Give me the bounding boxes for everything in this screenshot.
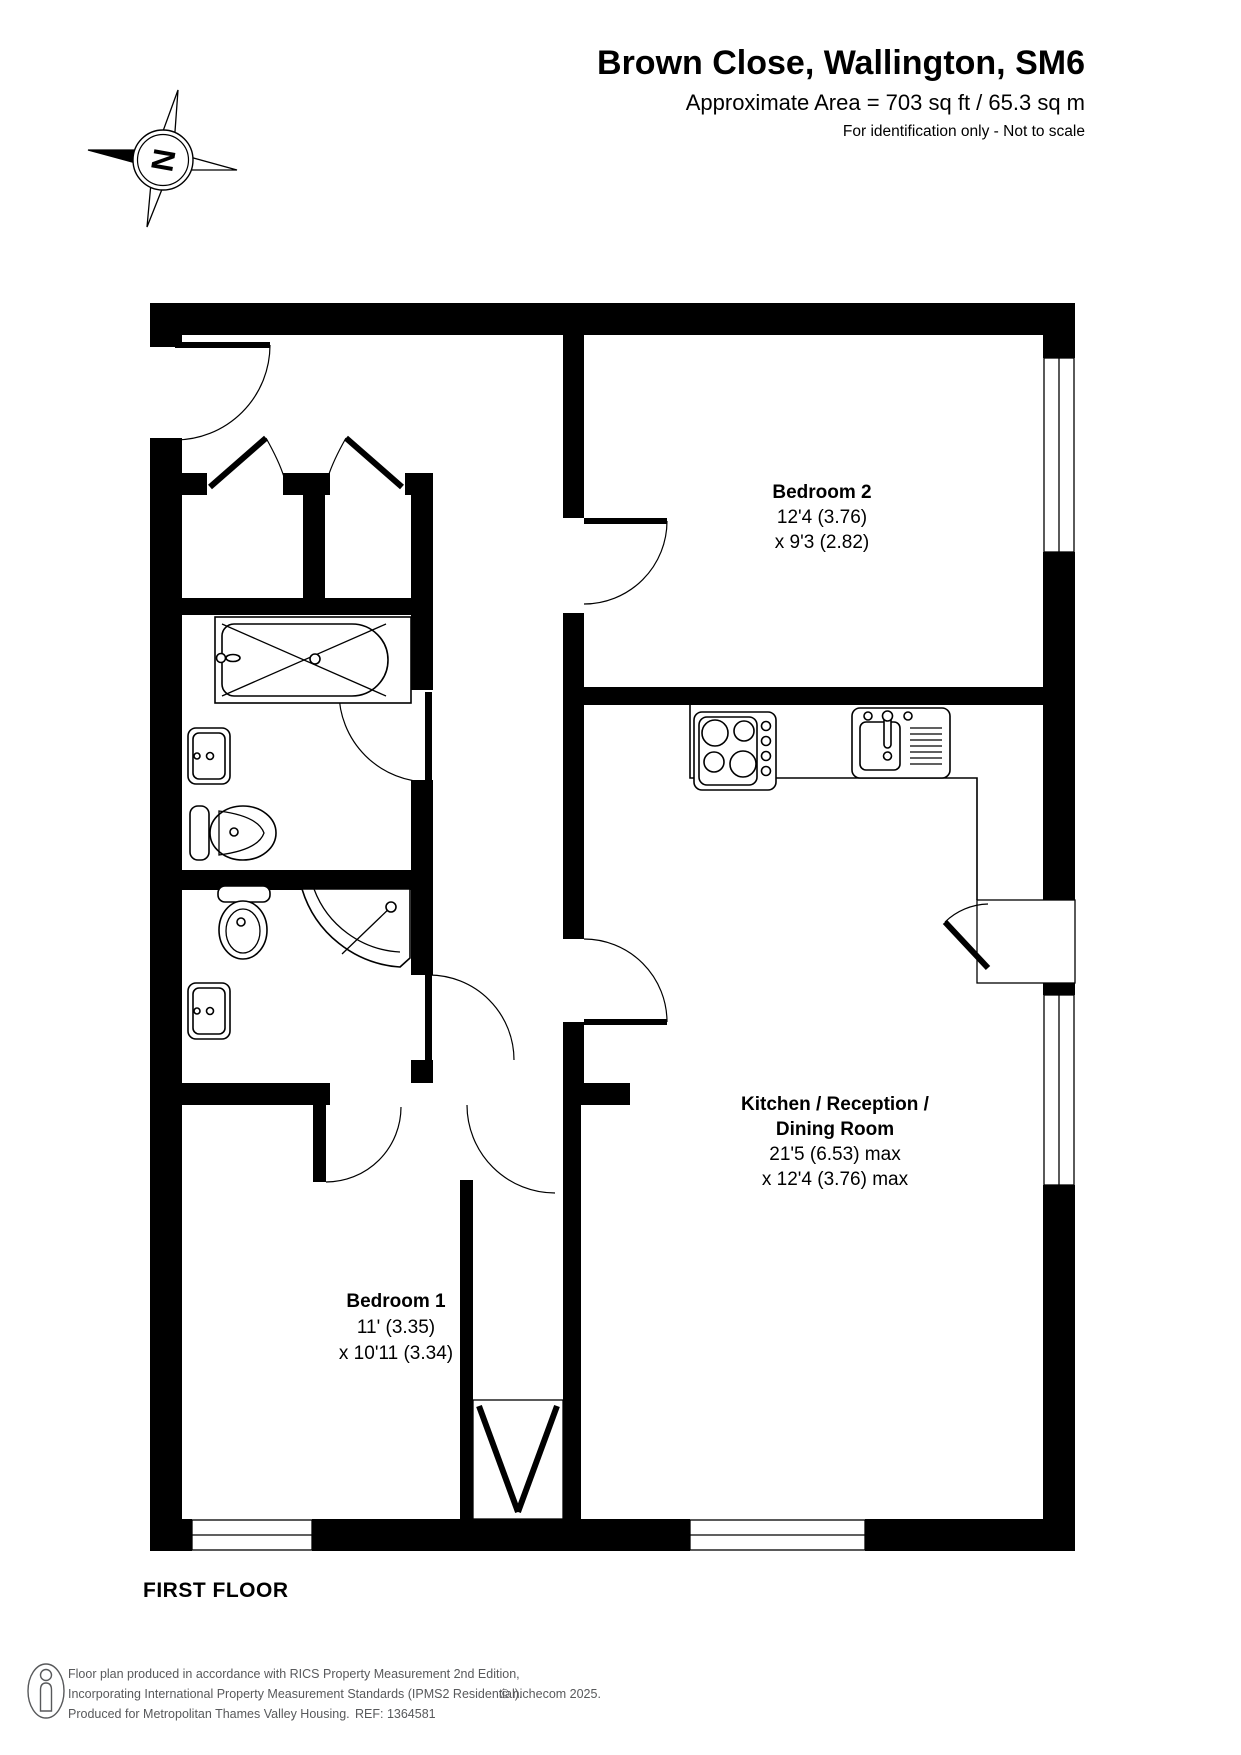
wall-closet-right [411,495,433,615]
wall-bathroom-bottom [150,870,433,890]
wall-bathroom-right-upper [411,613,433,690]
hallway-door [467,1105,555,1193]
svg-text:Bedroom 2: Bedroom 2 [772,482,871,503]
page-title: Brown Close, Wallington, SM6 [597,44,1085,82]
kitchen-door [584,939,667,1025]
footer: Floor plan produced in accordance with R… [28,1664,601,1721]
scale-disclaimer: For identification only - Not to scale [843,123,1085,140]
bath-drain-icon [310,654,320,664]
closet-door-left [210,438,284,487]
wall-bathroom-top [182,598,433,615]
footer-ref: REF: 1364581 [355,1707,436,1721]
corner-shower [302,889,410,967]
svg-text:x 12'4 (3.76) max: x 12'4 (3.76) max [762,1169,909,1190]
footer-line2: Incorporating International Property Mea… [68,1687,522,1701]
wall-bedroom2-kitchen [563,687,1043,705]
bathroom-basin [188,728,230,784]
header: Brown Close, Wallington, SM6 Approximate… [597,44,1085,140]
wall-shower-bottom [150,1083,330,1105]
svg-text:11' (3.35): 11' (3.35) [357,1317,435,1338]
wall-kitchen-stub [563,1083,630,1105]
bedroom2-door [584,518,667,604]
basin-tap-icon [194,753,200,759]
window-bedroom1-bottom [192,1519,312,1551]
footer-copyright: © nichecom 2025. [500,1687,601,1701]
shower-toilet [218,886,270,959]
vestibule-entry [473,1400,563,1519]
svg-text:x 9'3 (2.82): x 9'3 (2.82) [775,532,869,553]
walls [150,303,1075,1551]
wall-shower-right-upper [411,890,433,975]
bath-tap-icon [217,654,226,663]
footer-line1: Floor plan produced in accordance with R… [68,1667,520,1681]
hob-icon [694,712,776,790]
kitchen-recess [977,900,1075,983]
wall-bedroom1-right [460,1180,473,1519]
bathroom-toilet [190,806,276,860]
compass-icon: N [88,90,237,227]
sink-icon [852,708,950,778]
person-icon [28,1664,64,1718]
wall-left-upper [150,303,182,347]
svg-text:Bedroom 1: Bedroom 1 [346,1291,446,1312]
footer-line3: Produced for Metropolitan Thames Valley … [68,1707,350,1721]
approximate-area: Approximate Area = 703 sq ft / 65.3 sq m [686,90,1085,115]
wall-central-mid [563,613,584,939]
shower-room-basin [188,983,230,1039]
svg-text:x 10'11 (3.34): x 10'11 (3.34) [339,1343,453,1364]
wall-closet-row-mid [283,473,330,495]
wall-bedroom1-door-stub [313,1105,326,1182]
floor-caption: FIRST FLOOR [143,1579,289,1602]
wall-shower-right-lower [411,1060,433,1083]
bathroom-door [339,692,432,782]
wall-closet-row-left [150,473,207,495]
wall-closet-row-right [405,473,433,495]
wall-vestibule-right [563,1105,581,1519]
wall-left [150,438,182,1551]
window-kitchen-bottom [690,1519,865,1551]
wall-top [150,303,1075,335]
svg-text:12'4 (3.76): 12'4 (3.76) [777,507,867,528]
svg-text:Dining Room: Dining Room [776,1119,894,1140]
kitchen-label: Kitchen / Reception / Dining Room 21'5 (… [741,1094,930,1190]
bedroom2-label: Bedroom 2 12'4 (3.76) x 9'3 (2.82) [772,482,871,553]
bathroom-fixtures [188,617,411,860]
wall-bathroom-right-lower [411,780,433,870]
bedroom1-door [326,1107,401,1182]
shower-room-fixtures [188,886,410,1039]
svg-text:21'5 (6.53) max: 21'5 (6.53) max [769,1144,901,1165]
wall-closet-divider [303,495,325,615]
floorplan-canvas: Brown Close, Wallington, SM6 Approximate… [0,0,1241,1755]
entry-door [175,342,270,440]
wall-central-upper [563,335,584,518]
bedroom1-label: Bedroom 1 11' (3.35) x 10'11 (3.34) [339,1291,453,1364]
bathtub [215,617,411,703]
floorplan-page: Brown Close, Wallington, SM6 Approximate… [0,0,1241,1755]
window-bedroom2 [1043,358,1075,552]
window-kitchen-right [1043,995,1075,1185]
svg-text:Kitchen / Reception /: Kitchen / Reception / [741,1094,930,1115]
shower-room-door [425,975,514,1060]
sink-drainer [910,728,942,764]
shower-drain-icon [386,902,396,912]
closet-door-right [328,438,402,487]
